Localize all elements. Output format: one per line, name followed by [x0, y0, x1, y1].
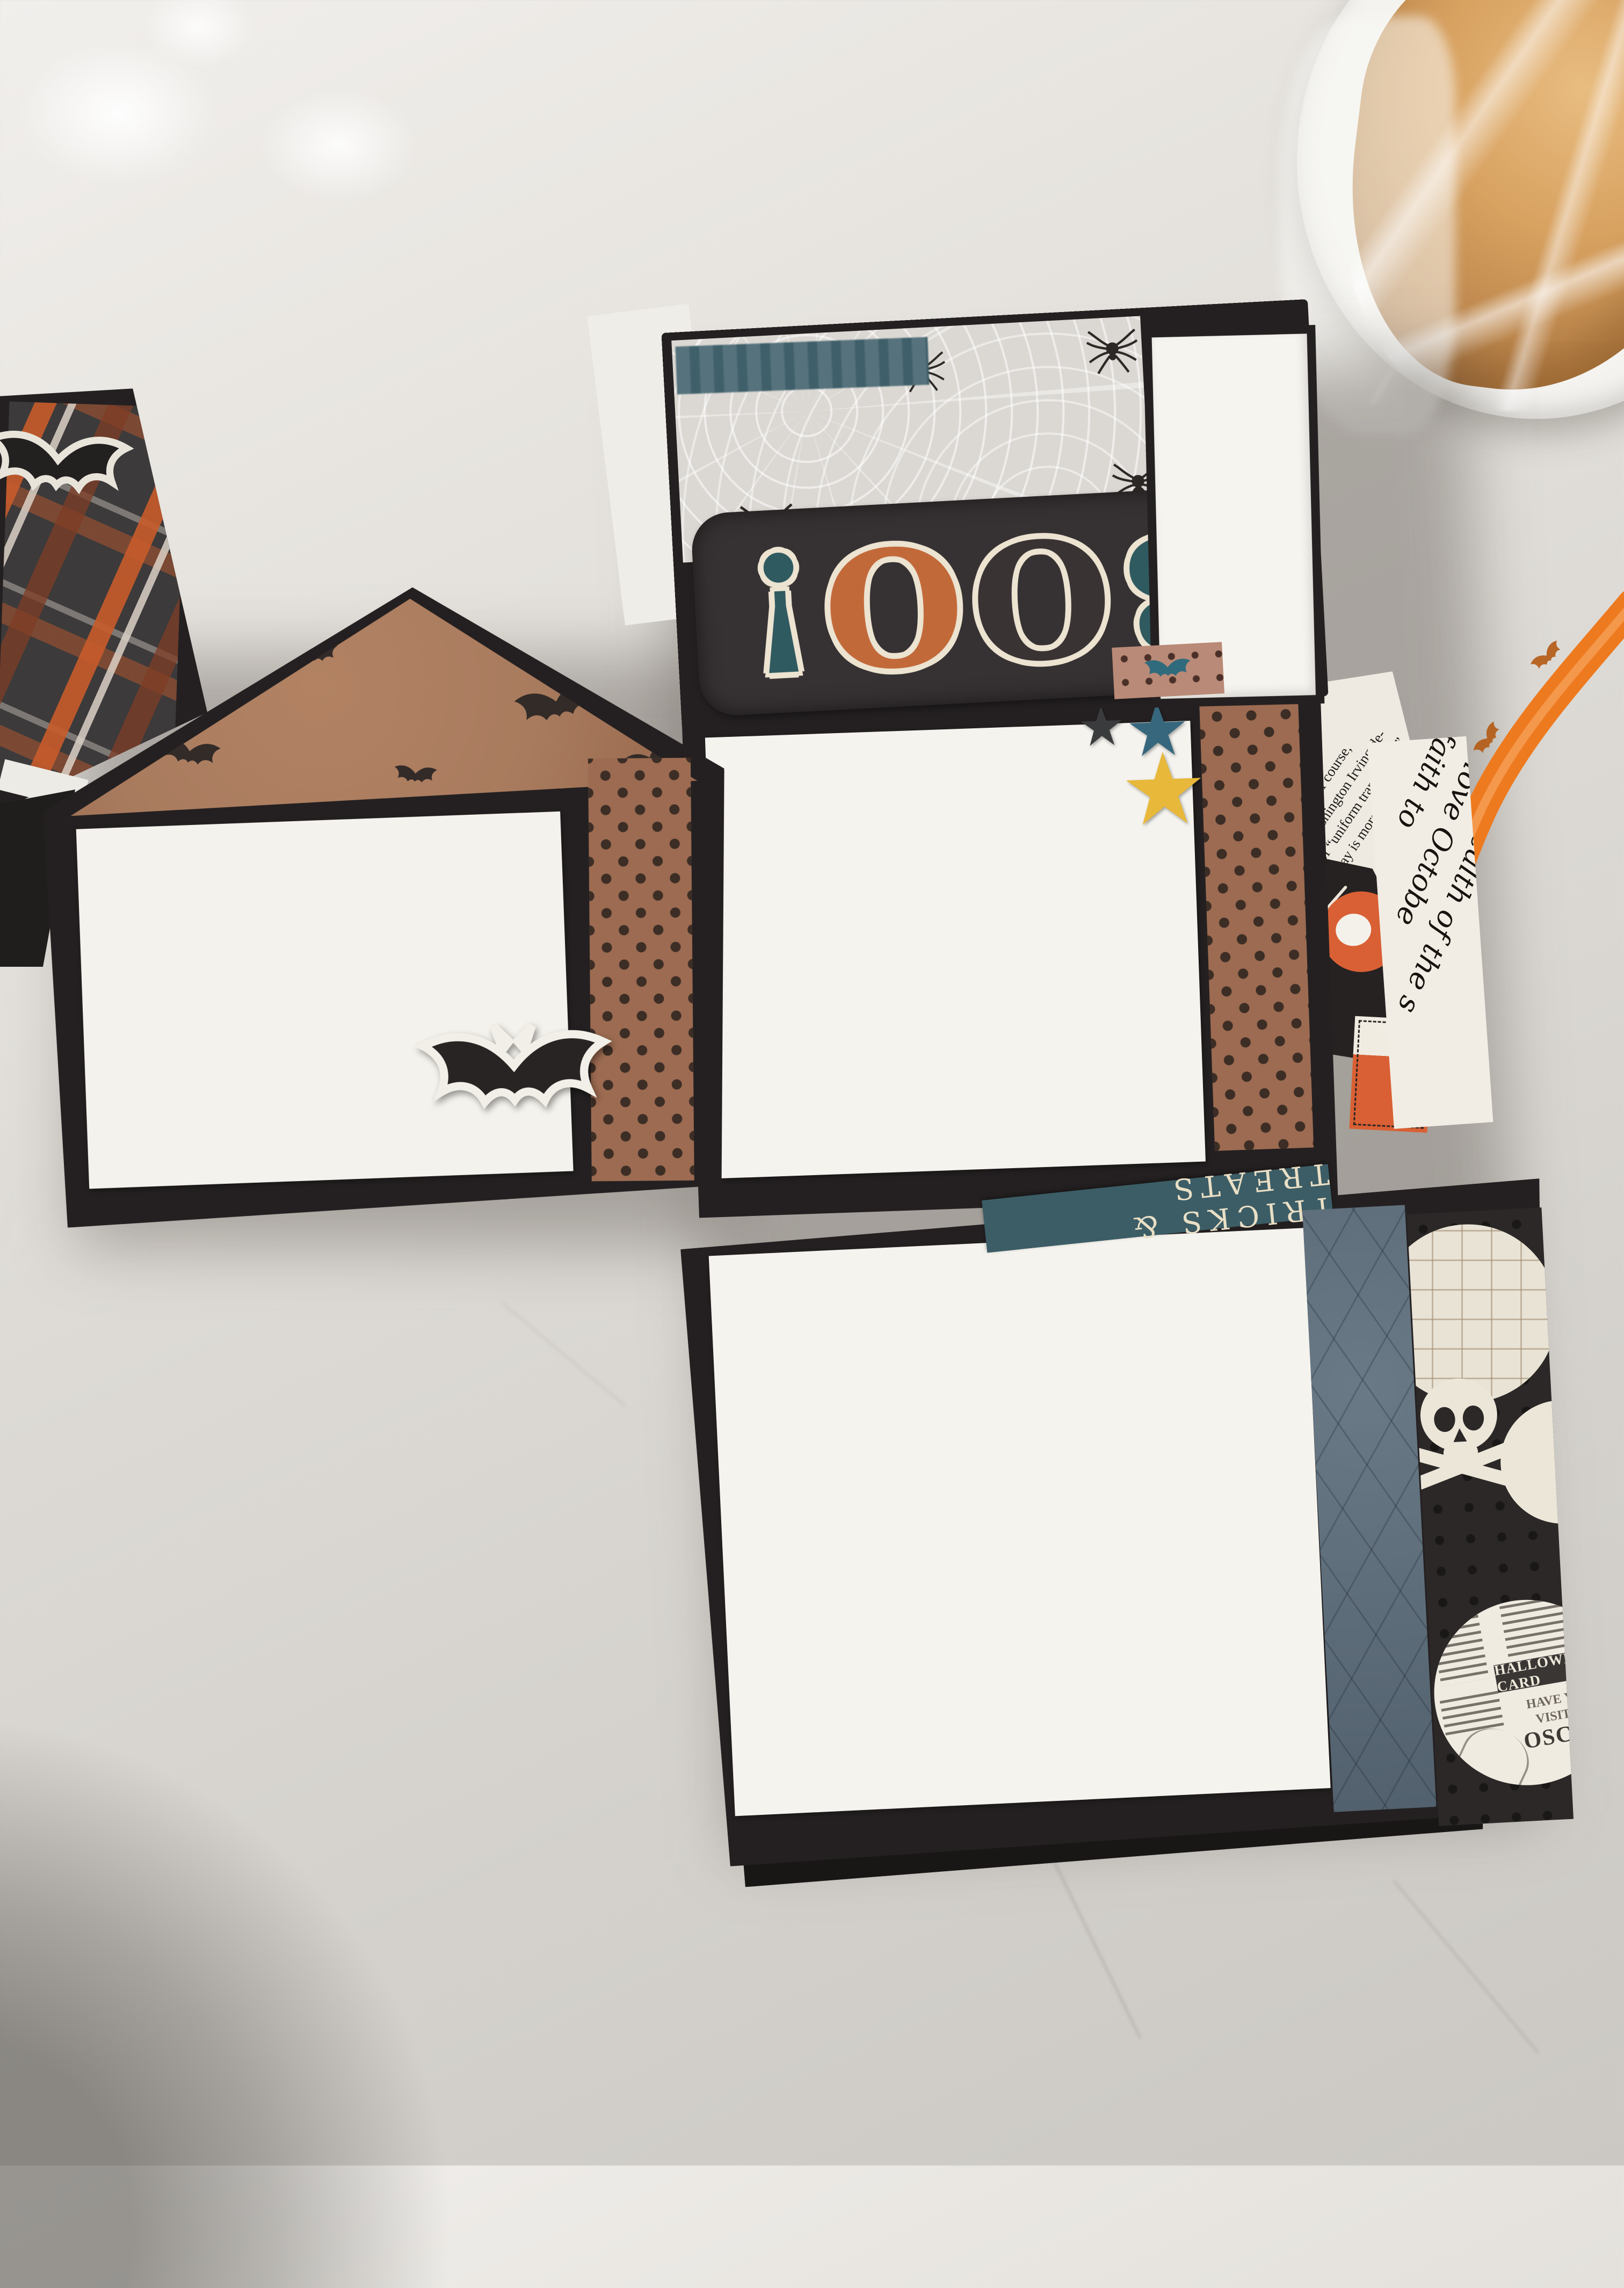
- boo-letter: O: [811, 508, 968, 705]
- bat-icon: [1132, 652, 1203, 681]
- star-icon: [1121, 746, 1207, 832]
- polka-dot-tab: [1112, 642, 1225, 699]
- light-reflection: [0, 11, 258, 215]
- bread-loaf: [1328, 0, 1624, 412]
- bottom-page: TRICKS & TREATS HALLOWEEN CARD HAVE YO: [679, 1178, 1582, 1867]
- vintage-ad-circle: HALLOWEEN CARD HAVE YOU VISITED OSCAR: [1430, 1595, 1574, 1790]
- bat-icon: [382, 758, 448, 786]
- light-reflection: [226, 64, 451, 226]
- polka-dot-strip: [588, 758, 694, 1182]
- boo-title-page: BOO!: [661, 299, 1328, 730]
- house-envelope-page: [38, 580, 736, 1228]
- photo-card: [708, 1228, 1330, 1816]
- star-icon: [1078, 703, 1125, 750]
- boo-letter: !: [733, 515, 821, 708]
- light-reflection: [118, 0, 279, 86]
- teal-title-strip: [676, 337, 930, 394]
- bat-icon: [376, 1010, 651, 1116]
- bat-icon: [0, 414, 163, 502]
- photo-mat: [76, 812, 573, 1189]
- spider-icon: [1084, 321, 1140, 377]
- stars-page: [682, 683, 1338, 1218]
- boo-letter: O: [959, 499, 1116, 697]
- marble-vein: [502, 1302, 626, 1407]
- ad-text-lines: [1431, 1614, 1489, 1686]
- marble-vein: [1393, 1880, 1539, 2054]
- ad-text-lines: [1499, 1595, 1574, 1660]
- photographer-shadow: [0, 1536, 607, 2288]
- polka-dot-strip: [1199, 697, 1314, 1151]
